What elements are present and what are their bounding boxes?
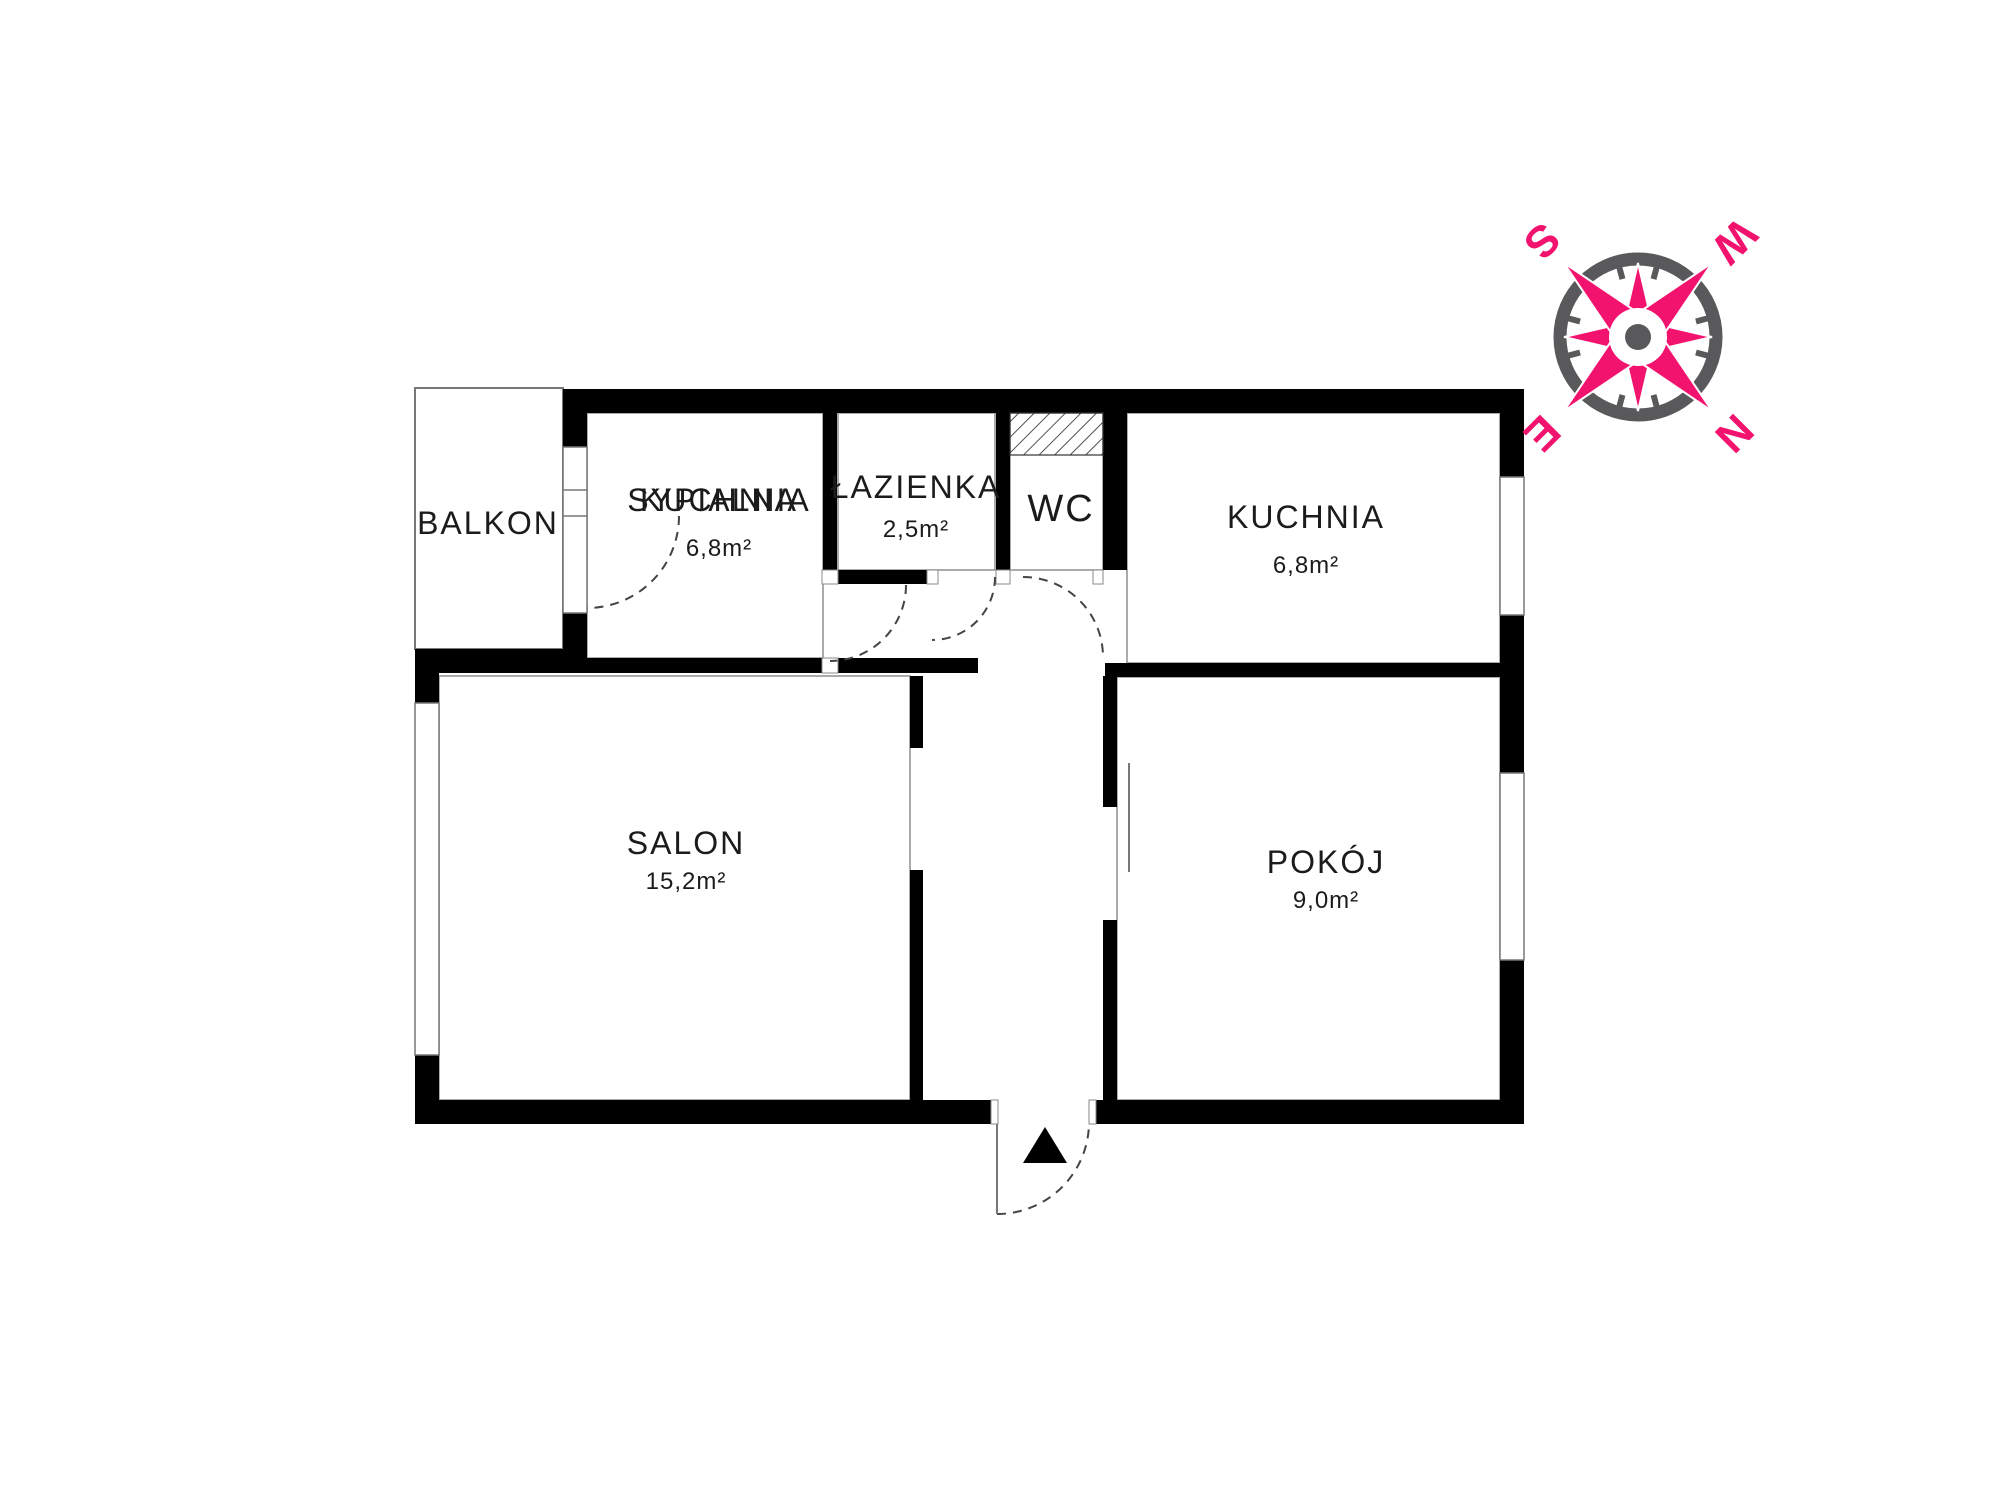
window-pokoj [1500,773,1524,960]
wall-bottom-left [415,1100,991,1124]
compass-rose: N E S W [1418,113,1862,557]
wall-under-balcony [415,649,587,673]
floor-plan: BALKON SYPIALNIA KUCHNIA 6,8m² ŁAZIENKA … [0,0,2000,1500]
room-area-salon: 15,2m² [646,868,727,895]
jamb-lazienka-left [927,570,938,584]
wall-bottom-right [1096,1100,1524,1124]
door-arc-sypialnia [830,585,906,661]
door-arc-lazienka [932,577,995,640]
wall-wc-kuchnia [1103,413,1127,570]
room-area-kuchnia: 6,8m² [1273,552,1339,579]
door-arc-wc [1023,577,1103,657]
room-label-kuchnia: KUCHNIA [1227,499,1385,535]
floor-plan-page: BALKON SYPIALNIA KUCHNIA 6,8m² ŁAZIENKA … [0,0,2000,1500]
room-label-balkon: BALKON [417,505,559,541]
jamb-entrance-right [1089,1100,1096,1124]
balcony-door [563,447,679,613]
room-area-sypialnia: 6,8m² [686,535,752,562]
jamb-lazienka-right [996,570,1010,584]
wall-salon-hall-lower [910,870,923,1100]
wall-salon-hall-upper [910,676,923,748]
entrance-arrow-icon [1023,1127,1067,1163]
compass-letter-south: S [1514,213,1569,268]
vent-shaft-hatch [1010,413,1103,455]
balcony-door-arc [587,516,679,608]
compass-letter-north: N [1706,405,1763,462]
room-label-wc: WC [1027,488,1094,530]
wall-hall-pokoj-upper [1103,676,1117,807]
room-label-lazienka: ŁAZIENKA [831,469,1002,505]
room-area-pokoj: 9,0m² [1293,887,1359,914]
wall-balcony-lower [563,613,587,673]
wall-kuchnia-pokoj [1105,663,1500,677]
wall-right-middle [1500,615,1524,773]
window-kuchnia [1500,477,1524,615]
room-label-pokoj: POKÓJ [1267,844,1385,880]
room-area-lazienka: 2,5m² [883,516,949,543]
wall-left-lower [415,1055,439,1124]
wall-top [563,389,1524,413]
wall-lazienka-bottom [838,570,927,584]
room-label-salon: SALON [627,825,745,861]
wall-right-upper [1500,389,1524,477]
room-label-sypialnia-overlap: KUCHNIA [640,482,798,518]
room-outline-kuchnia [1127,413,1500,663]
jamb-wc-right [1093,570,1103,584]
window-salon [415,703,439,1055]
balcony-door-frame [563,447,587,613]
wall-right-lower [1500,960,1524,1124]
jamb-sypialnia-top [822,570,838,584]
jamb-entrance-left [991,1100,998,1124]
wall-sypialnia-bottom [587,658,978,673]
wall-balcony-upper [563,389,587,447]
wall-hall-pokoj-lower [1103,920,1117,1100]
